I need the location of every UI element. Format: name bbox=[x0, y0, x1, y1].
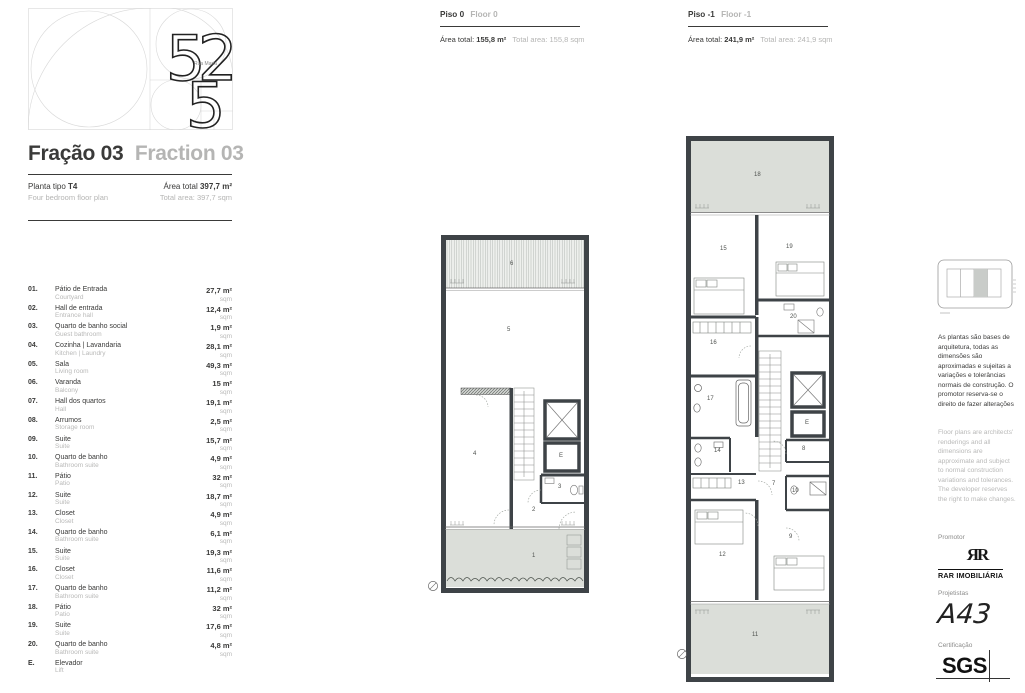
floor1-area-label: Área total: bbox=[688, 35, 722, 44]
room-list-row: 15. Suite Suite 19,3 m² sqm bbox=[28, 548, 232, 567]
plan-room-number: 11 bbox=[752, 632, 758, 638]
room-name-pt: Suite bbox=[55, 492, 182, 499]
room-name-en: Bathroom suite bbox=[55, 462, 182, 469]
room-name-pt: Quarto de banho bbox=[55, 454, 182, 461]
room-name-en: Suite bbox=[55, 443, 182, 450]
room-area-unit-en: sqm bbox=[182, 464, 232, 471]
plan-room-number: 7 bbox=[772, 481, 775, 487]
room-list-row: 07. Hall dos quartos Hall 19,1 m² sqm bbox=[28, 398, 232, 417]
room-number: 12. bbox=[28, 492, 55, 499]
room-list-row: 05. Sala Living room 49,3 m² sqm bbox=[28, 361, 232, 380]
room-list-row: 12. Suite Suite 18,7 m² sqm bbox=[28, 492, 232, 511]
floor1-plan: 18 15 19 20 16 17 14 13 7 8 E 10 12 9 11 bbox=[686, 136, 834, 682]
room-area: 2,5 m² bbox=[182, 417, 232, 426]
room-name-pt: Closet bbox=[55, 566, 182, 573]
divider bbox=[28, 220, 232, 221]
room-list-row: 11. Pátio Patio 32 m² sqm bbox=[28, 473, 232, 492]
room-area: 15 m² bbox=[182, 379, 232, 388]
room-area-unit-en: sqm bbox=[182, 426, 232, 433]
room-list-row: 01. Pátio de Entrada Courtyard 27,7 m² s… bbox=[28, 286, 232, 305]
divider bbox=[688, 26, 828, 27]
floor0-area-label: Área total: bbox=[440, 35, 474, 44]
room-number: 02. bbox=[28, 305, 55, 312]
room-name-en: Balcony bbox=[55, 387, 182, 394]
room-name-pt: Suite bbox=[55, 548, 182, 555]
floor1-header: Piso -1 Floor -1 Área total: 241,9 m² To… bbox=[688, 10, 838, 44]
room-name-pt: Quarto de banho bbox=[55, 585, 182, 592]
room-name-en: Hall bbox=[55, 406, 182, 413]
plan-room-number: 10 bbox=[792, 488, 799, 494]
plan-room-number: 16 bbox=[710, 340, 717, 346]
room-list-row: 02. Hall de entrada Entrance hall 12,4 m… bbox=[28, 305, 232, 324]
room-name-en: Courtyard bbox=[55, 294, 182, 301]
room-list-row: 18. Pátio Patio 32 m² sqm bbox=[28, 604, 232, 623]
room-list-row: 14. Quarto de banho Bathroom suite 6,1 m… bbox=[28, 529, 232, 548]
room-area-unit-en: sqm bbox=[182, 445, 232, 452]
room-list-row: 08. Arrumos Storage room 2,5 m² sqm bbox=[28, 417, 232, 436]
room-number: 17. bbox=[28, 585, 55, 592]
room-name-pt: Sala bbox=[55, 361, 182, 368]
room-area: 17,6 m² bbox=[182, 622, 232, 631]
room-name-pt: Pátio bbox=[55, 473, 182, 480]
room-number: 05. bbox=[28, 361, 55, 368]
plan-room-number: 14 bbox=[714, 448, 721, 454]
room-name-en: Suite bbox=[55, 499, 182, 506]
room-number: 15. bbox=[28, 548, 55, 555]
room-name-en: Closet bbox=[55, 574, 182, 581]
room-area: 49,3 m² bbox=[182, 361, 232, 370]
room-area-unit-en: sqm bbox=[182, 408, 232, 415]
plan-type-label: Planta tipo bbox=[28, 182, 66, 191]
room-number: 09. bbox=[28, 436, 55, 443]
floor0-area-en: Total area: 155,8 sqm bbox=[512, 35, 584, 44]
room-list: 01. Pátio de Entrada Courtyard 27,7 m² s… bbox=[28, 286, 232, 678]
room-number: 18. bbox=[28, 604, 55, 611]
total-area: Área total 397,7 m² Total area: 397,7 sq… bbox=[160, 182, 232, 202]
plan-room-number: 15 bbox=[720, 246, 727, 252]
plan-room-number: 19 bbox=[786, 244, 793, 250]
brand-logo: 5 2 5 Rua Maria bbox=[28, 8, 233, 130]
room-list-row: 10. Quarto de banho Bathroom suite 4,9 m… bbox=[28, 454, 232, 473]
room-area-unit-en: sqm bbox=[182, 352, 232, 359]
room-number: 04. bbox=[28, 342, 55, 349]
total-area-en: Total area: 397,7 sqm bbox=[160, 193, 232, 202]
room-area: 11,2 m² bbox=[182, 585, 232, 594]
total-area-value: 397,7 m² bbox=[200, 182, 232, 191]
room-area-unit-en: sqm bbox=[182, 632, 232, 639]
room-number: 03. bbox=[28, 323, 55, 330]
room-list-row: 09. Suite Suite 15,7 m² sqm bbox=[28, 436, 232, 455]
room-name-pt: Elevador bbox=[55, 660, 182, 667]
plan-room-number: 2 bbox=[532, 507, 535, 513]
floor1-plan-drawing bbox=[686, 136, 834, 682]
room-number: 13. bbox=[28, 510, 55, 517]
room-number: 11. bbox=[28, 473, 55, 480]
promoter-block: Promotor ЯR RAR IMOBILIÁRIA bbox=[938, 534, 1016, 583]
room-area: 28,1 m² bbox=[182, 342, 232, 351]
room-name-pt: Suite bbox=[55, 622, 182, 629]
plan-room-number: E bbox=[805, 420, 809, 426]
room-name-pt: Hall de entrada bbox=[55, 305, 182, 312]
room-area: 1,9 m² bbox=[182, 323, 232, 332]
floor0-header: Piso 0 Floor 0 Área total: 155,8 m² Tota… bbox=[440, 10, 590, 44]
room-area: 32 m² bbox=[182, 473, 232, 482]
promoter-name: RAR IMOBILIÁRIA bbox=[938, 569, 1003, 581]
room-area: 32 m² bbox=[182, 604, 232, 613]
room-name-en: Patio bbox=[55, 611, 182, 618]
rar-monogram-icon: ЯR bbox=[938, 545, 1016, 565]
room-name-pt: Cozinha | Lavandaria bbox=[55, 342, 182, 349]
room-name-en: Bathroom suite bbox=[55, 649, 182, 656]
room-area: 19,3 m² bbox=[182, 548, 232, 557]
plan-room-number: 5 bbox=[507, 327, 510, 333]
room-list-row: 13. Closet Closet 4,9 m² sqm bbox=[28, 510, 232, 529]
floor1-area-en: Total area: 241,9 sqm bbox=[760, 35, 832, 44]
plan-type-value: T4 bbox=[68, 182, 77, 191]
page-title: Fração 03 Fraction 03 bbox=[28, 142, 248, 166]
designers-logo: A43 bbox=[937, 601, 993, 628]
room-area-unit-en: sqm bbox=[182, 501, 232, 508]
room-area-unit-en: sqm bbox=[182, 370, 232, 377]
plan-type: Planta tipo T4 Four bedroom floor plan bbox=[28, 182, 108, 202]
room-area-unit-en: sqm bbox=[182, 520, 232, 527]
golden-ratio-logo-icon: 5 2 5 Rua Maria bbox=[28, 8, 233, 130]
room-list-row: 16. Closet Closet 11,6 m² sqm bbox=[28, 566, 232, 585]
promoter-label: Promotor bbox=[938, 534, 1016, 541]
room-name-pt: Varanda bbox=[55, 379, 182, 386]
fraction-title-pt: Fração 03 bbox=[28, 142, 123, 165]
room-name-pt: Suite bbox=[55, 436, 182, 443]
room-area: 11,6 m² bbox=[182, 566, 232, 575]
room-number: 01. bbox=[28, 286, 55, 293]
floor1-name-pt: Piso -1 bbox=[688, 10, 715, 19]
room-number: 07. bbox=[28, 398, 55, 405]
floor0-name-pt: Piso 0 bbox=[440, 10, 464, 19]
room-name-en: Living room bbox=[55, 368, 182, 375]
sgs-logo-rule bbox=[936, 678, 1010, 679]
plan-room-number: 8 bbox=[802, 446, 805, 452]
divider bbox=[28, 174, 232, 175]
room-number: 16. bbox=[28, 566, 55, 573]
plan-room-number: 18 bbox=[754, 172, 761, 178]
room-area-unit-en: sqm bbox=[182, 389, 232, 396]
plan-room-number: 6 bbox=[510, 261, 513, 267]
site-location-diagram bbox=[936, 256, 1018, 318]
plan-summary: Planta tipo T4 Four bedroom floor plan Á… bbox=[28, 182, 232, 202]
fraction-title-en: Fraction 03 bbox=[135, 142, 244, 165]
room-name-en: Kitchen | Laundry bbox=[55, 350, 182, 357]
room-list-row: 17. Quarto de banho Bathroom suite 11,2 … bbox=[28, 585, 232, 604]
plan-room-number: 9 bbox=[789, 534, 792, 540]
room-name-pt: Quarto de banho bbox=[55, 641, 182, 648]
sgs-logo-rule bbox=[989, 650, 990, 682]
room-area-unit-en: sqm bbox=[182, 333, 232, 340]
plan-type-en: Four bedroom floor plan bbox=[28, 193, 108, 202]
room-name-en: Closet bbox=[55, 518, 182, 525]
room-number: 10. bbox=[28, 454, 55, 461]
designers-block: Projetistas A43 bbox=[938, 590, 1016, 628]
room-area: 4,9 m² bbox=[182, 510, 232, 519]
room-name-pt: Pátio de Entrada bbox=[55, 286, 182, 293]
room-area-unit-en: sqm bbox=[182, 296, 232, 303]
plan-room-number: 13 bbox=[738, 480, 745, 486]
room-area-unit-en: sqm bbox=[182, 576, 232, 583]
room-list-row: 06. Varanda Balcony 15 m² sqm bbox=[28, 379, 232, 398]
floor0-area-value: 155,8 m² bbox=[476, 35, 506, 44]
room-name-pt: Hall dos quartos bbox=[55, 398, 182, 405]
room-name-pt: Pátio bbox=[55, 604, 182, 611]
sgs-logo: SGS bbox=[942, 653, 987, 678]
north-compass-icon bbox=[427, 580, 439, 592]
plan-room-number: 20 bbox=[790, 314, 797, 320]
room-area-unit-en: sqm bbox=[182, 651, 232, 658]
plan-room-number: 1 bbox=[532, 553, 535, 559]
floor1-name-en: Floor -1 bbox=[721, 10, 751, 19]
room-list-row: 19. Suite Suite 17,6 m² sqm bbox=[28, 622, 232, 641]
room-name-en: Guest bathroom bbox=[55, 331, 182, 338]
divider bbox=[440, 26, 580, 27]
room-area: 4,9 m² bbox=[182, 454, 232, 463]
room-area: 4,8 m² bbox=[182, 641, 232, 650]
room-area-unit-en: sqm bbox=[182, 538, 232, 545]
room-list-row: E. Elevador Lift bbox=[28, 660, 232, 679]
room-name-en: Patio bbox=[55, 480, 182, 487]
designers-label: Projetistas bbox=[938, 590, 1016, 597]
room-name-pt: Quarto de banho social bbox=[55, 323, 182, 330]
room-area: 12,4 m² bbox=[182, 305, 232, 314]
room-number: 08. bbox=[28, 417, 55, 424]
disclaimer-en: Floor plans are architects' renderings a… bbox=[938, 428, 1016, 504]
room-name-pt: Arrumos bbox=[55, 417, 182, 424]
room-area-unit-en: sqm bbox=[182, 595, 232, 602]
floor0-plan: 6 5 4 2 3 E 1 bbox=[441, 235, 589, 593]
room-name-pt: Closet bbox=[55, 510, 182, 517]
room-area: 27,7 m² bbox=[182, 286, 232, 295]
plan-room-number: 17 bbox=[707, 396, 714, 402]
floor0-plan-drawing bbox=[441, 235, 589, 593]
room-list-row: 03. Quarto de banho social Guest bathroo… bbox=[28, 323, 232, 342]
logo-caption: Rua Maria bbox=[194, 61, 217, 67]
room-name-en: Bathroom suite bbox=[55, 593, 182, 600]
room-area: 18,7 m² bbox=[182, 492, 232, 501]
north-compass-icon bbox=[676, 648, 688, 660]
floor-plan-sheet: 5 2 5 Rua Maria Fração 03 Fraction 03 Pl… bbox=[0, 0, 1025, 693]
room-name-en: Suite bbox=[55, 630, 182, 637]
room-area-unit-en: sqm bbox=[182, 482, 232, 489]
logo-digit: 5 bbox=[186, 69, 225, 130]
room-list-row: 20. Quarto de banho Bathroom suite 4,8 m… bbox=[28, 641, 232, 660]
room-number: 19. bbox=[28, 622, 55, 629]
floor1-area-value: 241,9 m² bbox=[724, 35, 754, 44]
room-number: 06. bbox=[28, 379, 55, 386]
room-name-en: Lift bbox=[55, 667, 182, 674]
room-list-row: 04. Cozinha | Lavandaria Kitchen | Laund… bbox=[28, 342, 232, 361]
plan-room-number: E bbox=[559, 453, 563, 459]
certification-label: Certificação bbox=[938, 642, 1016, 649]
total-area-label: Área total bbox=[163, 182, 197, 191]
room-name-en: Suite bbox=[55, 555, 182, 562]
room-area: 15,7 m² bbox=[182, 436, 232, 445]
room-name-en: Bathroom suite bbox=[55, 536, 182, 543]
room-number: E. bbox=[28, 660, 55, 667]
room-area: 19,1 m² bbox=[182, 398, 232, 407]
room-name-pt: Quarto de banho bbox=[55, 529, 182, 536]
room-area: 6,1 m² bbox=[182, 529, 232, 538]
room-name-en: Entrance hall bbox=[55, 312, 182, 319]
plan-room-number: 12 bbox=[719, 552, 726, 558]
room-number: 14. bbox=[28, 529, 55, 536]
room-area-unit-en: sqm bbox=[182, 557, 232, 564]
disclaimer-pt: As plantas são bases de arquitetura, tod… bbox=[938, 333, 1016, 409]
plan-room-number: 3 bbox=[558, 484, 561, 490]
floor0-name-en: Floor 0 bbox=[470, 10, 497, 19]
room-area-unit-en: sqm bbox=[182, 314, 232, 321]
plan-room-number: 4 bbox=[473, 451, 476, 457]
certification-block: Certificação SGS bbox=[938, 642, 1016, 678]
room-area-unit-en: sqm bbox=[182, 613, 232, 620]
room-number: 20. bbox=[28, 641, 55, 648]
room-name-en: Storage room bbox=[55, 424, 182, 431]
